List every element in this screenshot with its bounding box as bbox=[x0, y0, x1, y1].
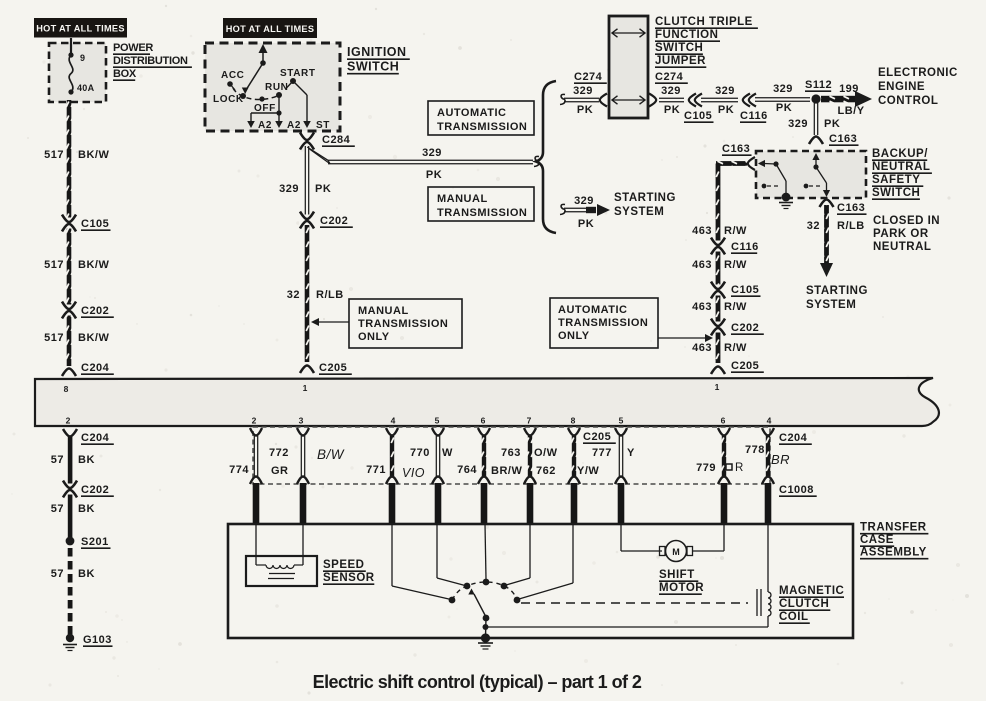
svg-text:BACKUP/: BACKUP/ bbox=[872, 148, 928, 160]
svg-text:TRANSFER: TRANSFER bbox=[860, 522, 927, 534]
svg-text:CLUTCH TRIPLE: CLUTCH TRIPLE bbox=[655, 16, 753, 28]
svg-text:2: 2 bbox=[66, 416, 71, 426]
svg-text:R/W: R/W bbox=[724, 259, 747, 271]
svg-text:C105: C105 bbox=[81, 218, 109, 230]
svg-text:MAGNETIC: MAGNETIC bbox=[779, 585, 844, 597]
svg-text:C105: C105 bbox=[684, 110, 712, 122]
svg-text:B/W: B/W bbox=[317, 447, 345, 462]
svg-text:4: 4 bbox=[391, 416, 396, 426]
svg-text:BK/W: BK/W bbox=[78, 149, 109, 161]
svg-text:JUMPER: JUMPER bbox=[655, 55, 706, 67]
svg-text:SPEED: SPEED bbox=[323, 559, 365, 571]
svg-text:BOX: BOX bbox=[113, 68, 137, 80]
svg-text:FUNCTION: FUNCTION bbox=[655, 29, 718, 41]
svg-text:IGNITION: IGNITION bbox=[347, 45, 407, 59]
svg-text:VIO: VIO bbox=[402, 466, 425, 480]
svg-text:R: R bbox=[735, 462, 743, 474]
svg-text:R/LB: R/LB bbox=[837, 220, 865, 232]
svg-text:ONLY: ONLY bbox=[558, 330, 590, 342]
svg-text:R/W: R/W bbox=[724, 225, 747, 237]
svg-text:CASE: CASE bbox=[860, 534, 894, 546]
svg-text:LOCK: LOCK bbox=[213, 94, 244, 105]
svg-text:PK: PK bbox=[664, 104, 680, 116]
svg-text:C274: C274 bbox=[655, 71, 684, 83]
svg-text:TRANSMISSION: TRANSMISSION bbox=[358, 318, 448, 330]
svg-text:BR: BR bbox=[771, 452, 790, 467]
svg-text:PK: PK bbox=[824, 118, 840, 130]
svg-text:C202: C202 bbox=[731, 322, 759, 334]
svg-text:9: 9 bbox=[80, 53, 85, 63]
svg-text:MOTOR: MOTOR bbox=[659, 582, 704, 594]
svg-text:777: 777 bbox=[592, 447, 612, 459]
svg-text:DISTRIBUTION: DISTRIBUTION bbox=[113, 55, 188, 67]
svg-text:CLOSED IN: CLOSED IN bbox=[873, 215, 940, 227]
svg-text:Electric shift control (typica: Electric shift control (typical) – part … bbox=[313, 672, 642, 692]
svg-text:R/LB: R/LB bbox=[316, 289, 344, 301]
svg-text:329: 329 bbox=[661, 85, 681, 97]
svg-text:463: 463 bbox=[692, 342, 712, 354]
svg-text:MANUAL: MANUAL bbox=[358, 305, 409, 317]
svg-text:57: 57 bbox=[51, 454, 64, 466]
svg-text:763: 763 bbox=[501, 447, 521, 459]
svg-text:C116: C116 bbox=[731, 241, 759, 253]
svg-text:57: 57 bbox=[51, 568, 64, 580]
svg-text:PK: PK bbox=[776, 102, 792, 114]
svg-text:C204: C204 bbox=[81, 362, 110, 374]
svg-text:779: 779 bbox=[696, 462, 716, 474]
svg-text:NEUTRAL: NEUTRAL bbox=[872, 161, 930, 173]
svg-text:SENSOR: SENSOR bbox=[323, 572, 375, 584]
svg-text:R/W: R/W bbox=[724, 301, 747, 313]
svg-text:C284: C284 bbox=[322, 134, 351, 146]
svg-text:770: 770 bbox=[410, 447, 430, 459]
svg-text:7: 7 bbox=[527, 416, 532, 426]
svg-text:C202: C202 bbox=[81, 305, 109, 317]
svg-text:A2: A2 bbox=[258, 120, 272, 131]
svg-text:PK: PK bbox=[578, 218, 594, 230]
svg-text:329: 329 bbox=[715, 85, 735, 97]
svg-text:COIL: COIL bbox=[779, 611, 808, 623]
svg-text:ACC: ACC bbox=[221, 70, 244, 81]
svg-text:PK: PK bbox=[577, 104, 593, 116]
svg-text:199: 199 bbox=[839, 83, 859, 95]
svg-text:GR: GR bbox=[271, 465, 289, 477]
svg-text:STARTING: STARTING bbox=[806, 285, 868, 297]
svg-text:ONLY: ONLY bbox=[358, 331, 390, 343]
svg-text:PK: PK bbox=[315, 183, 331, 195]
svg-text:SAFETY: SAFETY bbox=[872, 174, 920, 186]
svg-text:329: 329 bbox=[574, 195, 594, 207]
svg-text:6: 6 bbox=[481, 416, 486, 426]
svg-text:463: 463 bbox=[692, 259, 712, 271]
svg-text:PK: PK bbox=[718, 104, 734, 116]
svg-text:463: 463 bbox=[692, 301, 712, 313]
svg-text:RUN: RUN bbox=[265, 82, 288, 93]
svg-text:774: 774 bbox=[229, 464, 249, 476]
svg-text:329: 329 bbox=[573, 85, 593, 97]
svg-text:BK/W: BK/W bbox=[78, 332, 109, 344]
svg-text:463: 463 bbox=[692, 225, 712, 237]
svg-text:C204: C204 bbox=[81, 432, 110, 444]
svg-text:762: 762 bbox=[536, 465, 556, 477]
svg-text:3: 3 bbox=[299, 416, 304, 426]
svg-text:OFF: OFF bbox=[254, 103, 276, 114]
svg-text:32: 32 bbox=[807, 220, 820, 232]
svg-text:STARTING: STARTING bbox=[614, 192, 676, 204]
svg-text:S201: S201 bbox=[81, 536, 109, 548]
svg-text:TRANSMISSION: TRANSMISSION bbox=[558, 317, 648, 329]
svg-text:517: 517 bbox=[44, 149, 64, 161]
svg-text:SYSTEM: SYSTEM bbox=[614, 206, 664, 218]
svg-text:ASSEMBLY: ASSEMBLY bbox=[860, 547, 927, 559]
svg-text:TRANSMISSION: TRANSMISSION bbox=[437, 121, 527, 133]
svg-text:ST: ST bbox=[316, 120, 330, 131]
svg-text:BK: BK bbox=[78, 568, 95, 580]
svg-text:Y: Y bbox=[627, 447, 635, 459]
svg-text:C205: C205 bbox=[319, 362, 347, 374]
svg-text:32: 32 bbox=[287, 289, 300, 301]
svg-text:6: 6 bbox=[721, 416, 726, 426]
svg-text:C163: C163 bbox=[837, 202, 865, 214]
svg-text:C163: C163 bbox=[722, 143, 750, 155]
svg-text:C204: C204 bbox=[779, 432, 808, 444]
svg-text:C163: C163 bbox=[829, 133, 857, 145]
svg-text:C274: C274 bbox=[574, 71, 603, 83]
svg-text:TRANSMISSION: TRANSMISSION bbox=[437, 207, 527, 219]
svg-text:8: 8 bbox=[571, 416, 576, 426]
svg-text:771: 771 bbox=[366, 464, 386, 476]
svg-text:SWITCH: SWITCH bbox=[347, 60, 399, 74]
svg-text:AUTOMATIC: AUTOMATIC bbox=[437, 107, 506, 119]
svg-text:SYSTEM: SYSTEM bbox=[806, 299, 856, 311]
svg-text:C202: C202 bbox=[320, 215, 348, 227]
svg-text:NEUTRAL: NEUTRAL bbox=[873, 241, 931, 253]
svg-text:C205: C205 bbox=[583, 431, 611, 443]
svg-text:MANUAL: MANUAL bbox=[437, 193, 488, 205]
svg-text:SWITCH: SWITCH bbox=[655, 42, 703, 54]
svg-text:517: 517 bbox=[44, 332, 64, 344]
svg-text:2: 2 bbox=[252, 416, 257, 426]
svg-text:764: 764 bbox=[457, 464, 477, 476]
svg-text:BR/W: BR/W bbox=[491, 465, 522, 477]
svg-text:C202: C202 bbox=[81, 484, 109, 496]
svg-text:W: W bbox=[442, 447, 453, 459]
svg-text:329: 329 bbox=[788, 118, 808, 130]
svg-text:S112: S112 bbox=[805, 79, 832, 91]
svg-text:C105: C105 bbox=[731, 284, 759, 296]
svg-text:517: 517 bbox=[44, 259, 64, 271]
svg-text:CONTROL: CONTROL bbox=[878, 95, 938, 107]
svg-text:A2: A2 bbox=[287, 120, 301, 131]
svg-text:SWITCH: SWITCH bbox=[872, 187, 920, 199]
svg-text:C1008: C1008 bbox=[779, 484, 814, 496]
svg-text:BK: BK bbox=[78, 503, 95, 515]
svg-text:O/W: O/W bbox=[534, 447, 558, 459]
svg-text:57: 57 bbox=[51, 503, 64, 515]
svg-text:HOT AT ALL TIMES: HOT AT ALL TIMES bbox=[36, 24, 125, 34]
svg-text:Y/W: Y/W bbox=[577, 465, 599, 477]
svg-text:329: 329 bbox=[279, 183, 299, 195]
svg-text:4: 4 bbox=[767, 416, 772, 426]
svg-text:START: START bbox=[280, 68, 316, 79]
svg-text:772: 772 bbox=[269, 447, 289, 459]
svg-text:SHIFT: SHIFT bbox=[659, 569, 695, 581]
svg-text:LB/Y: LB/Y bbox=[837, 105, 864, 117]
svg-text:BK/W: BK/W bbox=[78, 259, 109, 271]
svg-text:8: 8 bbox=[64, 384, 69, 394]
svg-text:M: M bbox=[672, 547, 680, 557]
svg-text:POWER: POWER bbox=[113, 42, 153, 54]
svg-text:C116: C116 bbox=[740, 110, 768, 122]
svg-text:5: 5 bbox=[619, 416, 624, 426]
svg-text:AUTOMATIC: AUTOMATIC bbox=[558, 304, 627, 316]
svg-text:5: 5 bbox=[435, 416, 440, 426]
svg-text:R/W: R/W bbox=[724, 342, 747, 354]
svg-text:778: 778 bbox=[745, 444, 765, 456]
svg-text:ELECTRONIC: ELECTRONIC bbox=[878, 67, 958, 79]
svg-text:G103: G103 bbox=[83, 634, 112, 646]
svg-text:329: 329 bbox=[773, 83, 793, 95]
svg-text:40A: 40A bbox=[77, 83, 95, 93]
svg-text:329: 329 bbox=[422, 147, 442, 159]
svg-text:1: 1 bbox=[715, 382, 720, 392]
svg-text:1: 1 bbox=[303, 383, 308, 393]
svg-text:C205: C205 bbox=[731, 360, 759, 372]
svg-text:HOT AT ALL TIMES: HOT AT ALL TIMES bbox=[226, 24, 315, 34]
svg-text:PK: PK bbox=[426, 169, 442, 181]
svg-text:CLUTCH: CLUTCH bbox=[779, 598, 829, 610]
svg-text:ENGINE: ENGINE bbox=[878, 81, 925, 93]
svg-text:PARK OR: PARK OR bbox=[873, 228, 929, 240]
svg-text:BK: BK bbox=[78, 454, 95, 466]
